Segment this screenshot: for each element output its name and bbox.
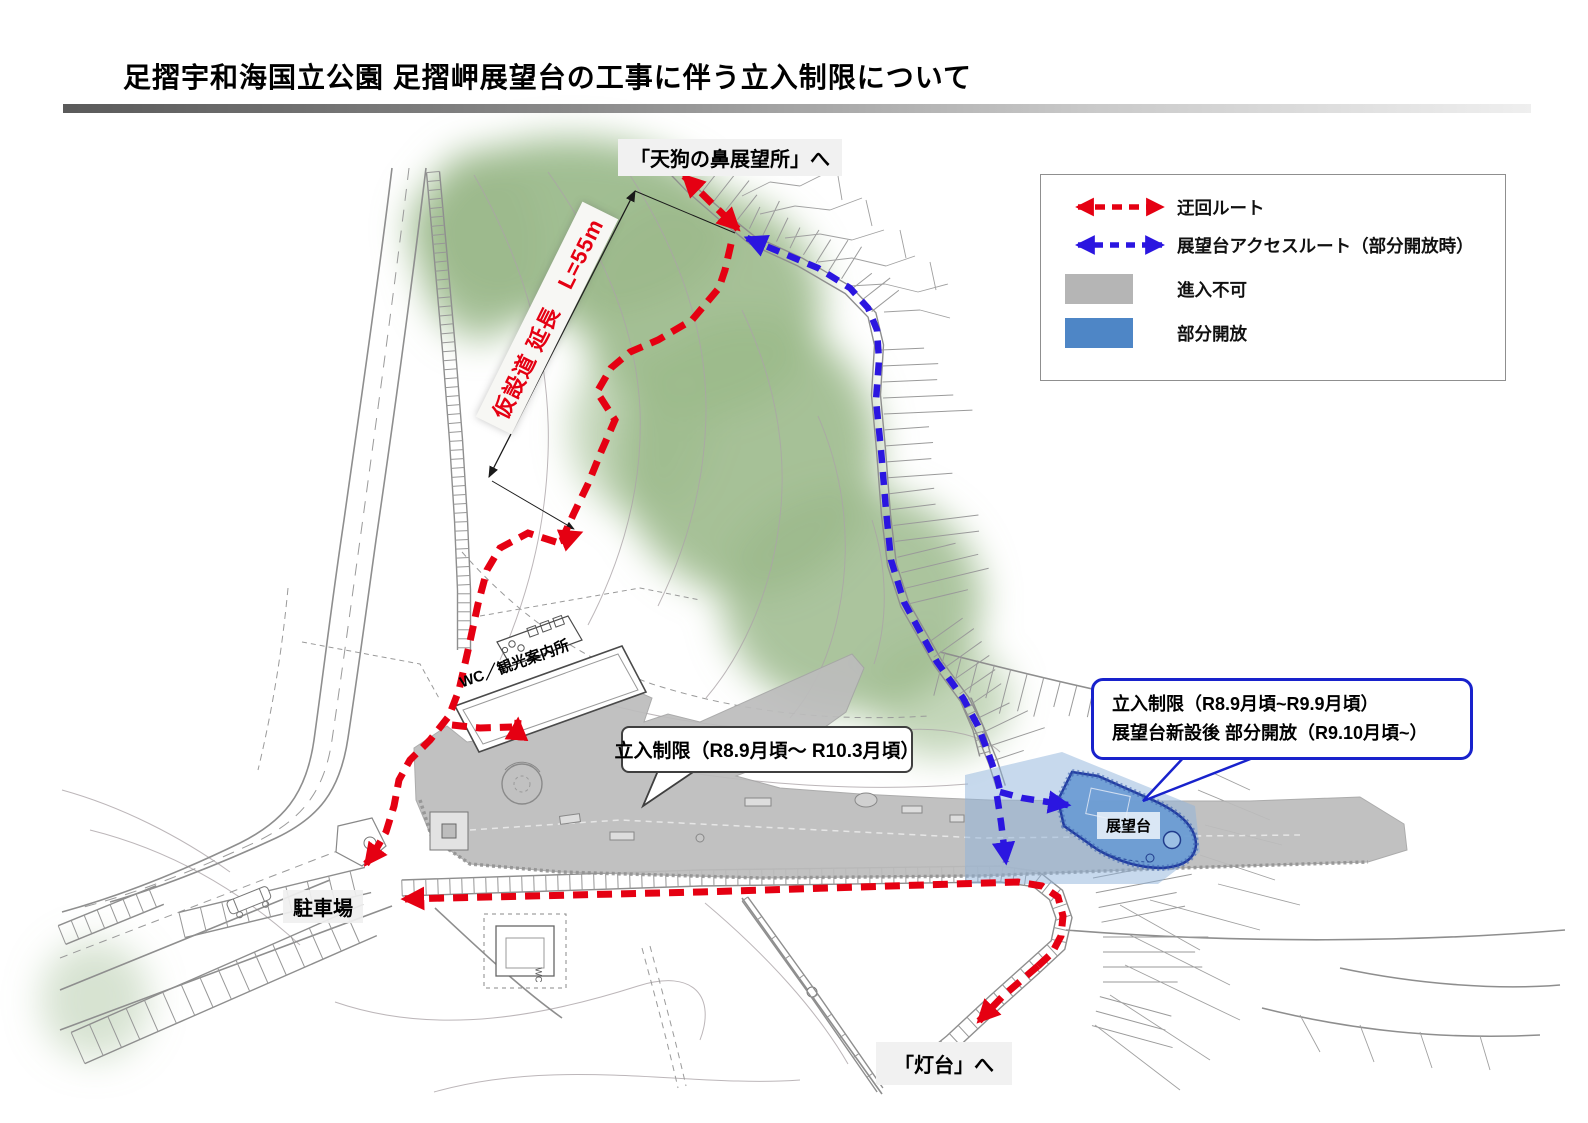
partial-open-swatch-icon	[1065, 318, 1133, 348]
page-title: 足摺宇和海国立公園 足摺岬展望台の工事に伴う立入制限について	[123, 56, 972, 96]
detour-route-arrow-icon	[1065, 189, 1175, 225]
legend-label-partial-open: 部分開放	[1177, 315, 1247, 351]
legend-item-no-entry: 進入不可	[1041, 271, 1505, 307]
page: { "page": { "title": "足摺宇和海国立公園 足摺岬展望台の工…	[0, 0, 1588, 1123]
callout-restriction-observatory: 立入制限（R8.9月頃~R9.9月頃） 展望台新設後 部分開放（R9.10月頃~…	[1091, 678, 1473, 760]
title-rule	[63, 104, 1531, 113]
forest-area	[40, 138, 1010, 1060]
callout-observatory-line2: 展望台新設後 部分開放（R9.10月頃~）	[1112, 719, 1464, 748]
label-parking: 駐車場	[283, 890, 363, 923]
label-lighthouse: 「灯台」へ	[876, 1042, 1012, 1085]
legend: 迂回ルート 展望台アクセスルート（部分開放時） 進入不可 部分開放	[1040, 174, 1506, 381]
callout-restriction-main: 立入制限（R8.9月頃～ R10.3月頃）	[621, 726, 913, 773]
legend-item-detour: 迂回ルート	[1041, 189, 1505, 225]
label-observatory: 展望台	[1097, 812, 1160, 839]
access-route-arrow-icon	[1065, 227, 1175, 263]
label-wc-small: WC	[534, 968, 544, 983]
label-tengu-viewpoint: 「天狗の鼻展望所」へ	[618, 139, 842, 176]
callout-observatory-line1: 立入制限（R8.9月頃~R9.9月頃）	[1112, 690, 1464, 719]
legend-label-detour: 迂回ルート	[1177, 189, 1265, 225]
no-entry-swatch-icon	[1065, 274, 1133, 304]
legend-item-partial-open: 部分開放	[1041, 315, 1505, 351]
legend-label-access: 展望台アクセスルート（部分開放時）	[1177, 227, 1474, 263]
legend-label-no-entry: 進入不可	[1177, 271, 1247, 307]
legend-item-access: 展望台アクセスルート（部分開放時）	[1041, 227, 1505, 263]
